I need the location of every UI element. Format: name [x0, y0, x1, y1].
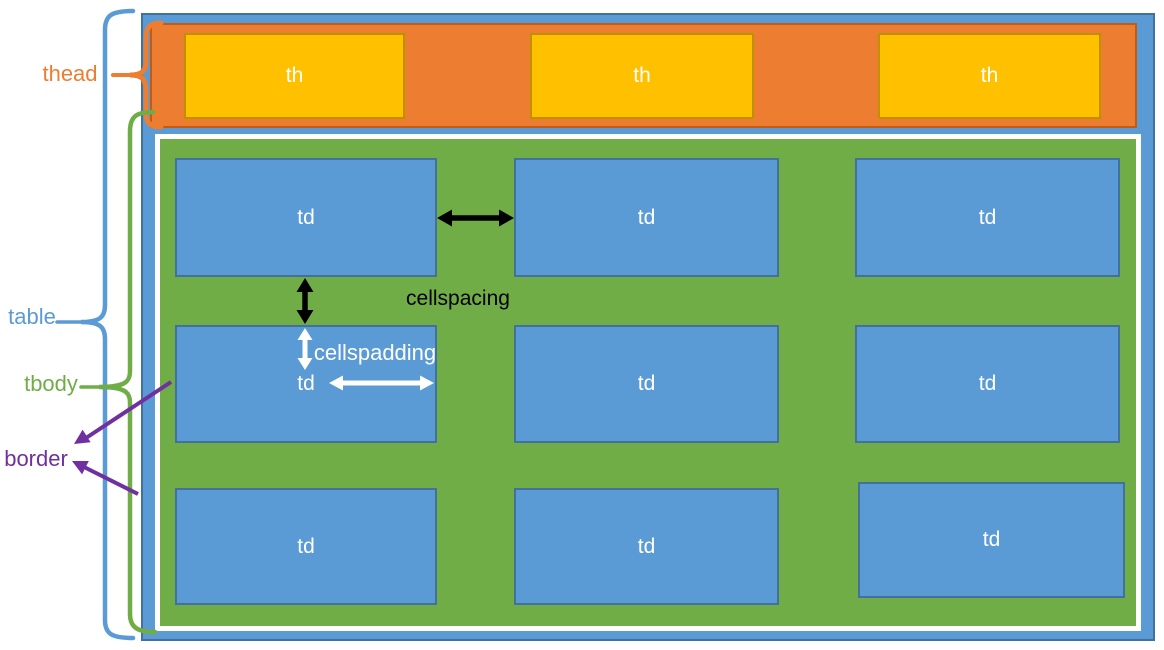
th-cell: th [530, 33, 754, 119]
th-cell: th [184, 33, 405, 119]
td-cell-label: td [638, 206, 656, 230]
td-cell-label: td [638, 372, 656, 396]
tbody-label: tbody [20, 371, 82, 397]
th-cell-label: th [981, 64, 999, 88]
td-cell: td [855, 325, 1120, 443]
table-anatomy-diagram: th th th td td td td td td td td td thea… [0, 0, 1164, 650]
td-cell: td [514, 488, 779, 605]
td-cell: td [855, 158, 1120, 277]
table-region: th th th td td td td td td td td td [141, 13, 1155, 641]
td-cell: td [858, 482, 1125, 598]
thead-label: thead [38, 61, 102, 87]
td-cell-label: td [638, 535, 656, 559]
td-cell-label: td [297, 535, 315, 559]
cellpadding-label: cellspadding [297, 340, 453, 366]
td-cell-label: td [297, 372, 315, 396]
thead-region: th th th [150, 23, 1137, 128]
td-cell: td [175, 488, 437, 605]
th-cell-label: th [633, 64, 651, 88]
td-cell-label: td [297, 206, 315, 230]
td-cell-label: td [979, 372, 997, 396]
cellspacing-label: cellspacing [380, 287, 536, 311]
td-cell: td [175, 158, 437, 277]
td-cell-label: td [979, 206, 997, 230]
border-label: border [2, 446, 70, 472]
table-brace [57, 11, 133, 638]
td-cell: td [514, 325, 779, 443]
table-label: table [2, 304, 62, 330]
th-cell-label: th [286, 64, 304, 88]
td-cell: td [514, 158, 779, 277]
th-cell: th [878, 33, 1101, 119]
tbody-region: td td td td td td td td td [155, 134, 1141, 631]
td-cell-label: td [983, 528, 1001, 552]
